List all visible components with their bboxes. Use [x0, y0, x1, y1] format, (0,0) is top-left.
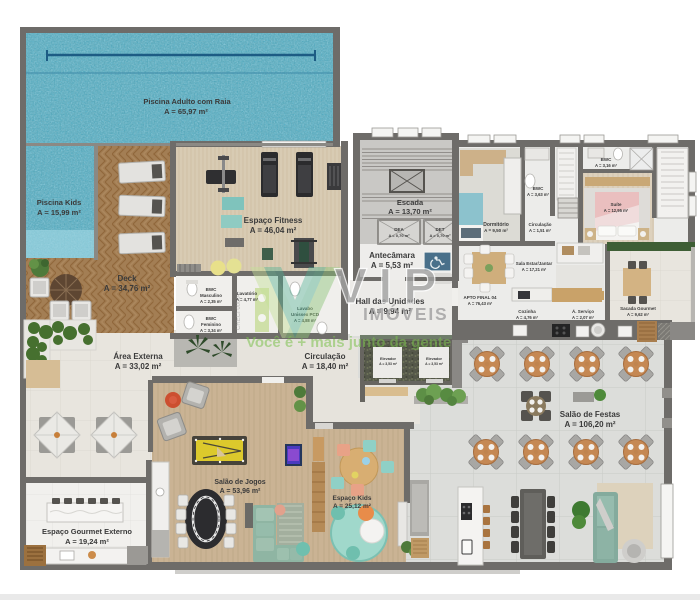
svg-text:Área Externa: Área Externa: [113, 352, 163, 361]
svg-text:Piscina Adulto com Raia: Piscina Adulto com Raia: [143, 97, 231, 106]
svg-text:A = 9,62 m²: A = 9,62 m²: [627, 312, 650, 317]
svg-text:Á. Serviço: Á. Serviço: [572, 308, 594, 314]
svg-text:A = 25,12 m²: A = 25,12 m²: [333, 503, 372, 510]
svg-text:A = 4,76 m²: A = 4,76 m²: [516, 315, 539, 320]
svg-text:A = 12,95 m²: A = 12,95 m²: [604, 208, 629, 213]
svg-text:A = 13,70 m²: A = 13,70 m²: [388, 207, 432, 216]
svg-text:A = 15,99 m²: A = 15,99 m²: [37, 208, 81, 217]
svg-text:BWC: BWC: [601, 157, 612, 162]
svg-text:BWC: BWC: [206, 287, 217, 292]
svg-text:Piscina Kids: Piscina Kids: [37, 198, 82, 207]
svg-text:A = 9,50 m²: A = 9,50 m²: [484, 228, 508, 233]
svg-text:DET: DET: [436, 227, 445, 232]
svg-text:A = 1,51 m²: A = 1,51 m²: [529, 228, 552, 233]
svg-text:A = 3,53 m²: A = 3,53 m²: [379, 362, 398, 366]
svg-text:A = 17,21 m²: A = 17,21 m²: [522, 267, 547, 272]
svg-text:Feminino: Feminino: [201, 322, 221, 327]
svg-text:A = 76,43 m²: A = 76,43 m²: [468, 301, 493, 306]
svg-text:A = 2,07 m²: A = 2,07 m²: [572, 315, 595, 320]
svg-text:A = 2,35 m²: A = 2,35 m²: [200, 299, 223, 304]
svg-text:Elevador: Elevador: [426, 357, 443, 361]
svg-text:A = 3,34 m²: A = 3,34 m²: [200, 328, 223, 333]
svg-text:Salão de Festas: Salão de Festas: [560, 410, 621, 419]
svg-text:Elevador: Elevador: [380, 357, 397, 361]
svg-text:Circulação: Circulação: [305, 352, 346, 361]
svg-text:IMÓVEIS: IMÓVEIS: [363, 303, 449, 324]
svg-text:A = 3,53 m²: A = 3,53 m²: [425, 362, 444, 366]
svg-text:Espaço Gourmet Externo: Espaço Gourmet Externo: [42, 527, 132, 536]
svg-text:A = 34,76 m²: A = 34,76 m²: [104, 284, 151, 293]
svg-text:A = 106,20 m²: A = 106,20 m²: [564, 420, 615, 429]
svg-text:Espaço Fitness: Espaço Fitness: [244, 216, 303, 225]
svg-text:Você é + mais junto da gente: Você é + mais junto da gente: [246, 334, 451, 351]
svg-text:APTO FINAL 04: APTO FINAL 04: [463, 295, 497, 300]
svg-text:Masculino: Masculino: [200, 293, 222, 298]
svg-text:Sala Estar/Jantar: Sala Estar/Jantar: [516, 261, 553, 266]
svg-text:A = 0,70 m²: A = 0,70 m²: [388, 233, 410, 238]
svg-text:A = 18,40 m²: A = 18,40 m²: [302, 362, 349, 371]
svg-text:Sacada Gourmet: Sacada Gourmet: [620, 306, 656, 311]
svg-text:BWC: BWC: [533, 186, 544, 191]
svg-text:Cozinha: Cozinha: [518, 309, 536, 314]
svg-text:CRECI 0000-J: CRECI 0000-J: [236, 291, 242, 330]
svg-text:Deck: Deck: [117, 274, 137, 283]
svg-text:A = 33,02 m²: A = 33,02 m²: [115, 362, 162, 371]
svg-text:DEA: DEA: [394, 227, 404, 232]
svg-text:Salão de Jogos: Salão de Jogos: [214, 479, 265, 486]
svg-text:A = 53,96 m²: A = 53,96 m²: [220, 488, 261, 495]
svg-text:A = 0,70 m²: A = 0,70 m²: [429, 233, 451, 238]
svg-text:Circulação: Circulação: [528, 222, 551, 227]
svg-text:A = 19,24 m²: A = 19,24 m²: [65, 537, 109, 546]
svg-text:Suíte: Suíte: [610, 202, 621, 207]
svg-text:A = 65,97 m²: A = 65,97 m²: [164, 107, 208, 116]
svg-text:Escada: Escada: [397, 198, 424, 207]
svg-text:Espaço Kids: Espaço Kids: [332, 495, 371, 502]
svg-text:BWC: BWC: [206, 316, 217, 321]
svg-text:A = 3,63 m²: A = 3,63 m²: [527, 192, 550, 197]
svg-text:A = 3,16 m²: A = 3,16 m²: [595, 163, 618, 168]
svg-text:A = 46,04 m²: A = 46,04 m²: [250, 226, 297, 235]
